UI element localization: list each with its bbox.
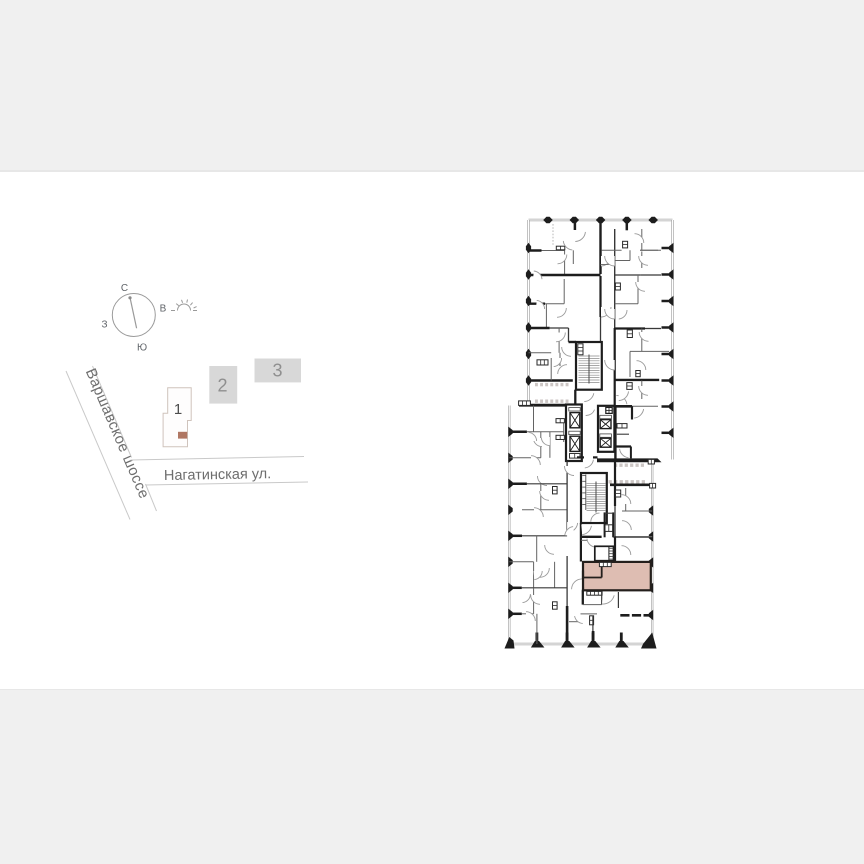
svg-text:С: С <box>121 283 128 294</box>
svg-text:2: 2 <box>217 376 227 396</box>
svg-text:Нагатинская ул.: Нагатинская ул. <box>164 466 272 484</box>
svg-text:В: В <box>160 304 167 315</box>
svg-text:З: З <box>101 320 107 331</box>
svg-text:Ю: Ю <box>137 343 147 354</box>
svg-text:3: 3 <box>272 361 282 381</box>
svg-text:1: 1 <box>174 401 182 418</box>
